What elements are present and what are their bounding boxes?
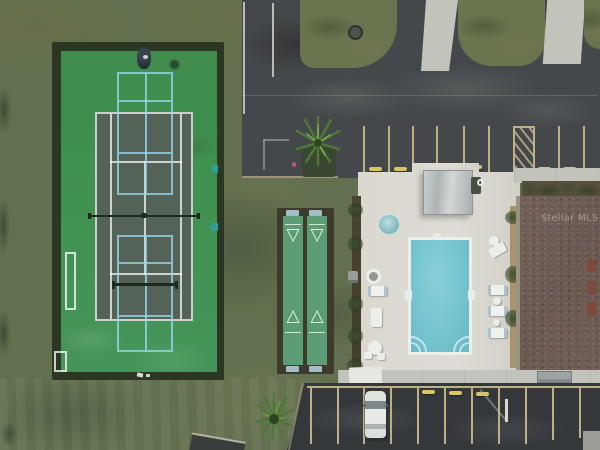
net-post (197, 213, 200, 219)
scoring-triangle-up: △ (283, 308, 303, 325)
mowed-lawn (0, 378, 295, 450)
court-side-chair (212, 165, 218, 173)
shrub (348, 236, 363, 252)
spa-hot-tub (377, 213, 401, 236)
grass-tuft (0, 196, 10, 256)
parking-stall-line (272, 3, 274, 77)
grass-tuft (0, 308, 11, 358)
shuffleboard-bench (286, 210, 299, 216)
grass-tuft (0, 85, 12, 135)
roof-vent (587, 302, 597, 315)
manhole-cover (348, 25, 363, 40)
scoring-triangle-down: ▽ (283, 227, 303, 244)
parking-stall-line (498, 388, 500, 444)
swimming-pool (408, 237, 472, 355)
net-post (88, 213, 91, 219)
parking-stall-line (488, 126, 490, 176)
deck-hedge-border (352, 196, 361, 378)
parking-stall-line (390, 388, 392, 444)
scoring-triangle-down: ▽ (307, 227, 327, 244)
roof-vent (587, 259, 597, 272)
shuffleboard-bench (286, 366, 299, 372)
aerial-photo-scene: ▽ △ ▽ △ (0, 0, 600, 450)
wheel-stop (422, 390, 435, 394)
coiled-hose (477, 179, 484, 186)
parking-stall-line (444, 388, 446, 444)
pool-skimmer (405, 290, 412, 300)
shade-pavilion-roof (423, 170, 473, 215)
parking-stall-line (310, 388, 312, 444)
pool-handrail (433, 233, 441, 238)
scoring-triangle-up: △ (307, 308, 327, 325)
pavement-edge-line (243, 2, 245, 114)
court-equipment-frame (54, 351, 67, 372)
debris-speck (146, 374, 150, 377)
person-detail (143, 55, 148, 59)
pool-lounger (488, 306, 507, 316)
court-side-chair (211, 223, 218, 231)
courtside-bench (65, 252, 76, 310)
light-pole (505, 399, 508, 422)
car-mirror (385, 404, 388, 407)
shuffleboard-bench (309, 210, 322, 216)
concrete-corner (583, 431, 600, 450)
pickleball-court-upper (117, 72, 173, 195)
parking-stall-line (525, 388, 527, 444)
parking-stall-line (263, 139, 289, 141)
palm-tree (294, 107, 342, 171)
parking-stall-line (388, 126, 390, 176)
shrub (348, 328, 363, 344)
side-table (493, 297, 501, 305)
pool-skimmer (468, 290, 475, 300)
round-patio-table (366, 269, 381, 284)
net-center-strap (141, 213, 147, 218)
pavement-seam (242, 95, 598, 96)
parking-head-line (307, 386, 600, 388)
parking-stall-line (363, 126, 365, 176)
wheel-stop (394, 167, 407, 171)
pool-lounger (371, 308, 382, 327)
shuffleboard-bench (309, 366, 322, 372)
pickleball-net-post (112, 281, 115, 289)
pickleball-center-line (145, 237, 147, 350)
parking-stall-line (552, 388, 554, 440)
car-mirror (363, 404, 366, 407)
parking-stall-line (337, 388, 339, 444)
small-palm-plant (252, 386, 296, 444)
pickleball-net (113, 283, 177, 286)
wheel-stop (449, 391, 462, 395)
grass-strip (458, 0, 545, 66)
pool-lounger (368, 286, 387, 296)
court-stain (169, 59, 180, 70)
shuffleboard-court-left: ▽ △ (283, 216, 303, 365)
pickleball-center-line (145, 74, 147, 193)
pool-lounger (488, 328, 507, 338)
patio-chair (377, 353, 385, 360)
mls-watermark: Stellar MLS (541, 213, 599, 224)
pink-marker (292, 162, 296, 167)
concrete-driveway (543, 0, 585, 64)
white-car (365, 391, 386, 438)
ac-unit (537, 371, 572, 383)
parking-stall-line (263, 140, 265, 170)
shrub (348, 296, 363, 312)
pool-lounger (488, 285, 507, 295)
side-table (493, 319, 500, 326)
parking-lot-bottom (285, 383, 600, 450)
pickleball-net-post (175, 281, 178, 289)
scoring-line (285, 332, 301, 333)
parking-stall-line (579, 388, 581, 438)
grass-corner (584, 0, 600, 49)
wheel-stop (369, 167, 382, 171)
parking-stall-line (417, 388, 419, 444)
grill (348, 271, 358, 283)
pickleball-court-lower (117, 235, 173, 352)
parking-stall-line (471, 388, 473, 444)
shuffleboard-court-right: ▽ △ (307, 216, 327, 365)
scoring-line (309, 332, 325, 333)
shrub (348, 203, 363, 217)
patio-chair (364, 352, 372, 359)
pole-shadow (479, 389, 508, 422)
roof-vent (587, 281, 597, 294)
